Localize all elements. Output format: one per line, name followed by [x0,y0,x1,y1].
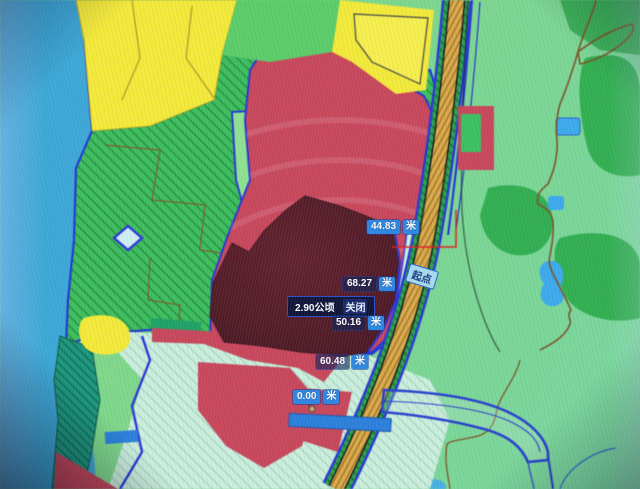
measurement-label-1: 44.83米 [367,220,419,234]
measurement-unit: 米 [379,277,395,291]
measurement-value: 44.83 [367,220,400,234]
measurement-value: 50.16 [332,316,365,330]
zone-green-strip [222,0,340,62]
measurement-unit: 米 [403,220,419,234]
measurement-unit: 米 [352,355,368,369]
pond [540,261,564,307]
measurement-label-4: 60.48米 [316,355,368,369]
measurement-label-2: 68.27米 [343,277,395,291]
measurement-label-5: 0.00米 [293,390,339,404]
measurement-unit: 米 [323,390,339,404]
map-canvas [0,0,640,489]
measurement-value: 60.48 [316,355,349,369]
pond [548,196,564,210]
parcel-area-label: 2.90公顷 关闭 [287,296,375,317]
measurement-label-3: 50.16米 [332,316,384,330]
close-button[interactable]: 关闭 [343,299,367,314]
measurement-unit: 米 [368,316,384,330]
measurement-value: 68.27 [343,277,376,291]
measurement-value: 0.00 [293,390,320,404]
map-viewport[interactable]: 44.83米 68.27米 2.90公顷 关闭 50.16米 60.48米 0.… [0,0,640,489]
parcel-area-value: 2.90公顷 [295,299,334,314]
pond [556,118,580,135]
